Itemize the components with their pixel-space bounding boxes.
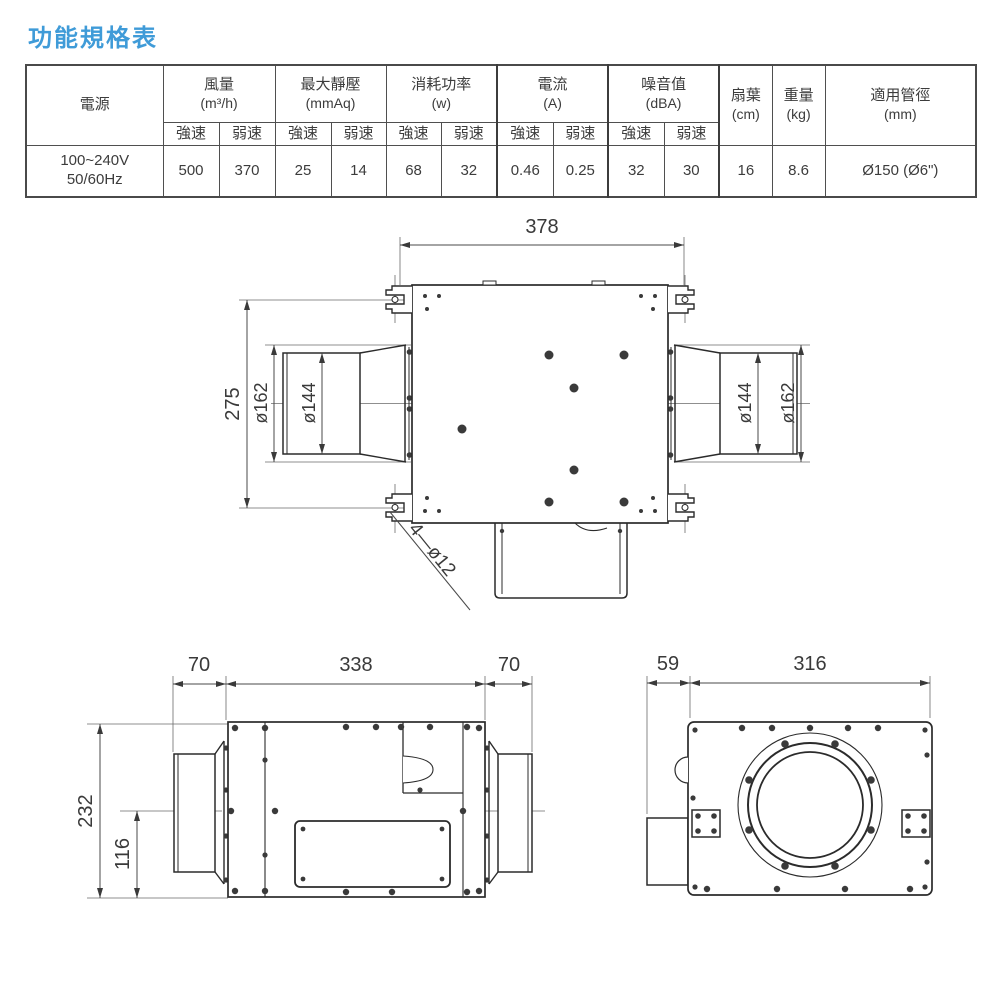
junction-box-top-view	[495, 523, 627, 598]
th-power: 電源	[26, 65, 163, 146]
dim-316-label: 316	[793, 653, 826, 675]
th-sub-high: 強速	[608, 123, 664, 146]
dim-right-144-label: ø144	[735, 382, 755, 423]
th-group-static-pressure: 最大靜壓 (mmAq)	[275, 65, 386, 123]
power-voltage: 100~240V	[27, 152, 163, 171]
dim-right-162-label: ø162	[778, 382, 798, 423]
side-view-drawing: 70 338 70 232 116	[40, 640, 560, 930]
th-sub-high: 強速	[386, 123, 441, 146]
th-weight-unit: (kg)	[773, 106, 825, 124]
th-noise-unit: (dBA)	[609, 95, 718, 113]
cell-watt-low: 32	[441, 146, 497, 198]
th-sub-low: 弱速	[219, 123, 275, 146]
th-sub-low: 弱速	[664, 123, 719, 146]
cell-current-high: 0.46	[497, 146, 553, 198]
th-current-label: 電流	[498, 76, 607, 95]
dim-70-right-label: 70	[498, 654, 520, 676]
dim-front-top-chain: 59 316	[647, 653, 930, 686]
front-view-drawing: 59 316	[600, 640, 995, 930]
cell-noise-low: 30	[664, 146, 719, 198]
th-watt-unit: (w)	[387, 95, 497, 113]
cable-gland-bump	[675, 757, 688, 783]
body-top-tab	[592, 281, 605, 285]
dim-70-left-label: 70	[188, 654, 210, 676]
cell-fan: 16	[719, 146, 772, 198]
side-right-collar	[484, 741, 532, 884]
th-weight-label: 重量	[773, 87, 825, 106]
th-airflow-unit: (m³/h)	[164, 95, 275, 113]
cell-watt-high: 68	[386, 146, 441, 198]
th-sub-low: 弱速	[331, 123, 386, 146]
th-fan-label: 扇葉	[720, 87, 772, 106]
dim-left-162-label: ø162	[251, 382, 271, 423]
dim-338-label: 338	[339, 654, 372, 676]
table-data-row: 100~240V 50/60Hz 500 370 25 14 68 32 0.4…	[26, 146, 976, 198]
dim-232: 232	[75, 724, 103, 898]
page-title: 功能規格表	[28, 18, 158, 53]
dim-275: 275	[225, 300, 250, 508]
th-static-label: 最大靜壓	[276, 76, 386, 95]
dim-side-top-chain: 70 338 70	[173, 654, 532, 687]
dim-378: 378	[400, 216, 684, 248]
th-static-unit: (mmAq)	[276, 95, 386, 113]
dim-116: 116	[112, 811, 140, 898]
fan-body-top-view	[412, 285, 668, 523]
th-sub-low: 弱速	[553, 123, 608, 146]
top-view-drawing: 378 275 ø162 ø144 ø144 ø162	[225, 205, 815, 640]
fan-body-front-view	[688, 722, 932, 895]
dim-378-label: 378	[525, 216, 558, 238]
power-frequency: 50/60Hz	[27, 171, 163, 190]
cell-duct: Ø150 (Ø6")	[825, 146, 976, 198]
cell-noise-high: 32	[608, 146, 664, 198]
th-sub-high: 強速	[275, 123, 331, 146]
th-group-noise: 噪音值 (dBA)	[608, 65, 719, 123]
th-current-unit: (A)	[498, 95, 607, 113]
th-sub-high: 強速	[497, 123, 553, 146]
cell-static-high: 25	[275, 146, 331, 198]
cell-power: 100~240V 50/60Hz	[26, 146, 163, 198]
th-sub-low: 弱速	[441, 123, 497, 146]
th-group-current: 電流 (A)	[497, 65, 608, 123]
junction-box-front-view	[647, 818, 688, 885]
cell-airflow-high: 500	[163, 146, 219, 198]
th-airflow-label: 風量	[164, 76, 275, 95]
body-top-tab	[483, 281, 496, 285]
th-group-power-consumption: 消耗功率 (w)	[386, 65, 497, 123]
spec-table: 電源 風量 (m³/h) 最大靜壓 (mmAq) 消耗功率 (w) 電流 (A)…	[25, 64, 977, 198]
dim-232-label: 232	[75, 794, 97, 827]
th-sub-high: 強速	[163, 123, 219, 146]
th-duct-label: 適用管徑	[826, 87, 976, 106]
leader-4-holes: 4—ø12	[390, 512, 470, 610]
dim-116-label: 116	[112, 838, 134, 870]
dim-275-label: 275	[225, 387, 244, 420]
th-noise-label: 噪音值	[609, 76, 718, 95]
table-header-row: 電源 風量 (m³/h) 最大靜壓 (mmAq) 消耗功率 (w) 電流 (A)…	[26, 65, 976, 123]
dim-59-label: 59	[657, 653, 679, 675]
th-watt-label: 消耗功率	[387, 76, 497, 95]
spec-sheet-page: 功能規格表 電源 風量 (m³/h) 最大靜壓 (mmAq) 消耗功率 (w)	[0, 0, 1000, 1000]
dim-left-144-label: ø144	[299, 382, 319, 423]
side-left-collar	[174, 741, 229, 884]
cell-current-low: 0.25	[553, 146, 608, 198]
leader-4-holes-label: 4—ø12	[404, 519, 460, 581]
th-fan-blade: 扇葉 (cm)	[719, 65, 772, 146]
cell-weight: 8.6	[772, 146, 825, 198]
th-group-airflow: 風量 (m³/h)	[163, 65, 275, 123]
th-weight: 重量 (kg)	[772, 65, 825, 146]
cell-airflow-low: 370	[219, 146, 275, 198]
th-duct-unit: (mm)	[826, 106, 976, 124]
th-duct-size: 適用管徑 (mm)	[825, 65, 976, 146]
cell-static-low: 14	[331, 146, 386, 198]
th-fan-unit: (cm)	[720, 106, 772, 124]
